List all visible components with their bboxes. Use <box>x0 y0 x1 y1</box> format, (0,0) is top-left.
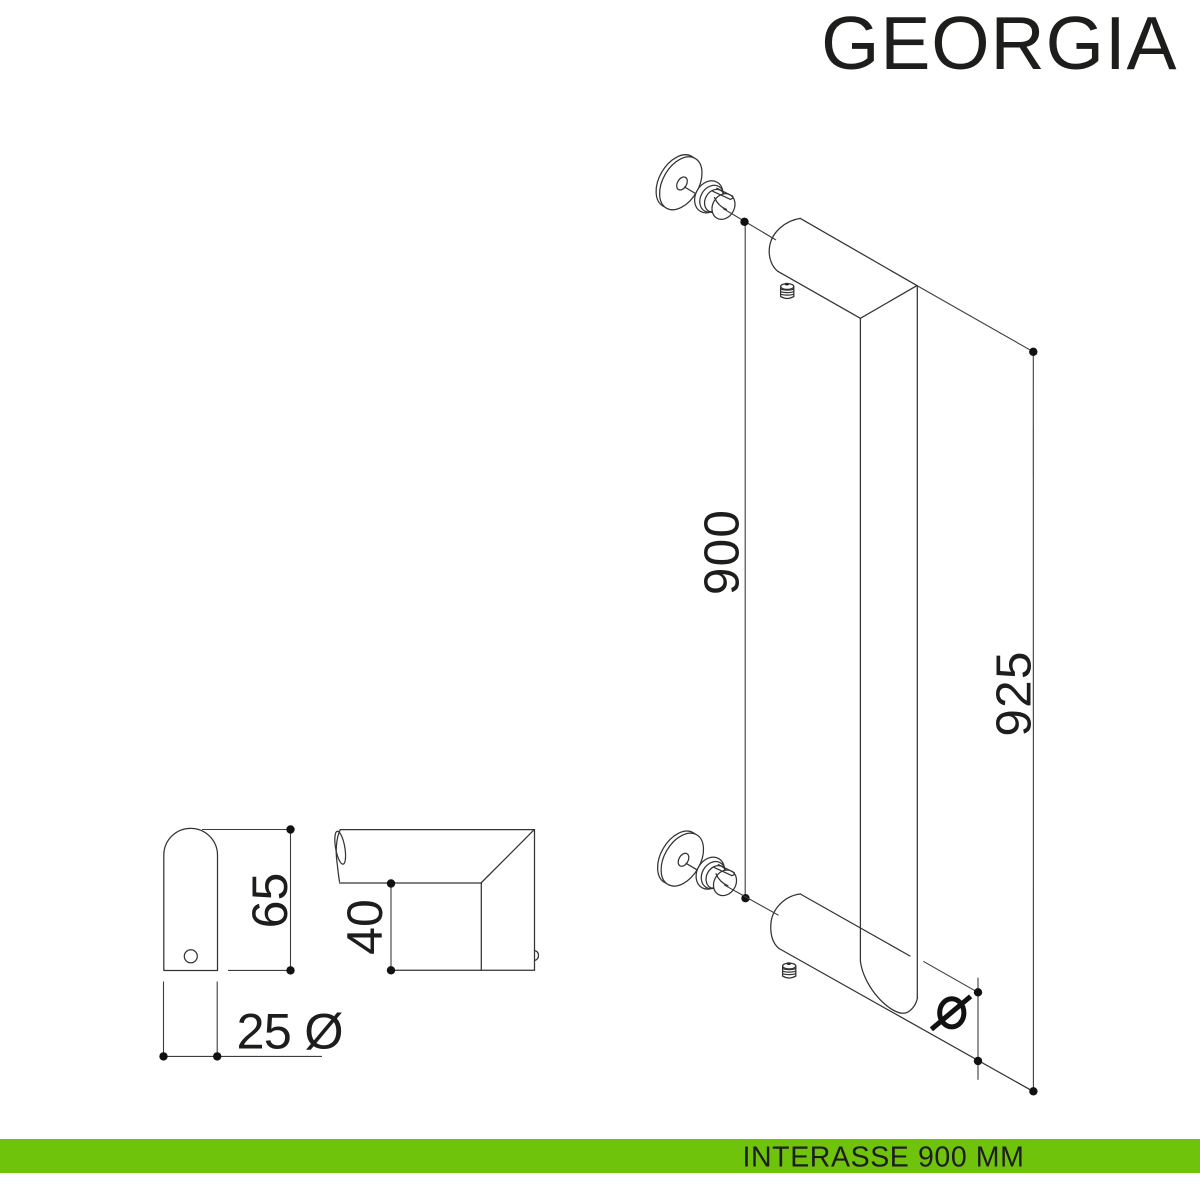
svg-text:900: 900 <box>695 509 750 595</box>
svg-text:GEORGIA: GEORGIA <box>821 1 1177 85</box>
svg-text:40: 40 <box>337 899 393 955</box>
svg-text:925: 925 <box>987 650 1042 736</box>
svg-text:65: 65 <box>242 873 298 929</box>
svg-text:INTERASSE 900 MM: INTERASSE 900 MM <box>742 1142 1024 1174</box>
svg-text:25 Ø: 25 Ø <box>237 1003 343 1060</box>
